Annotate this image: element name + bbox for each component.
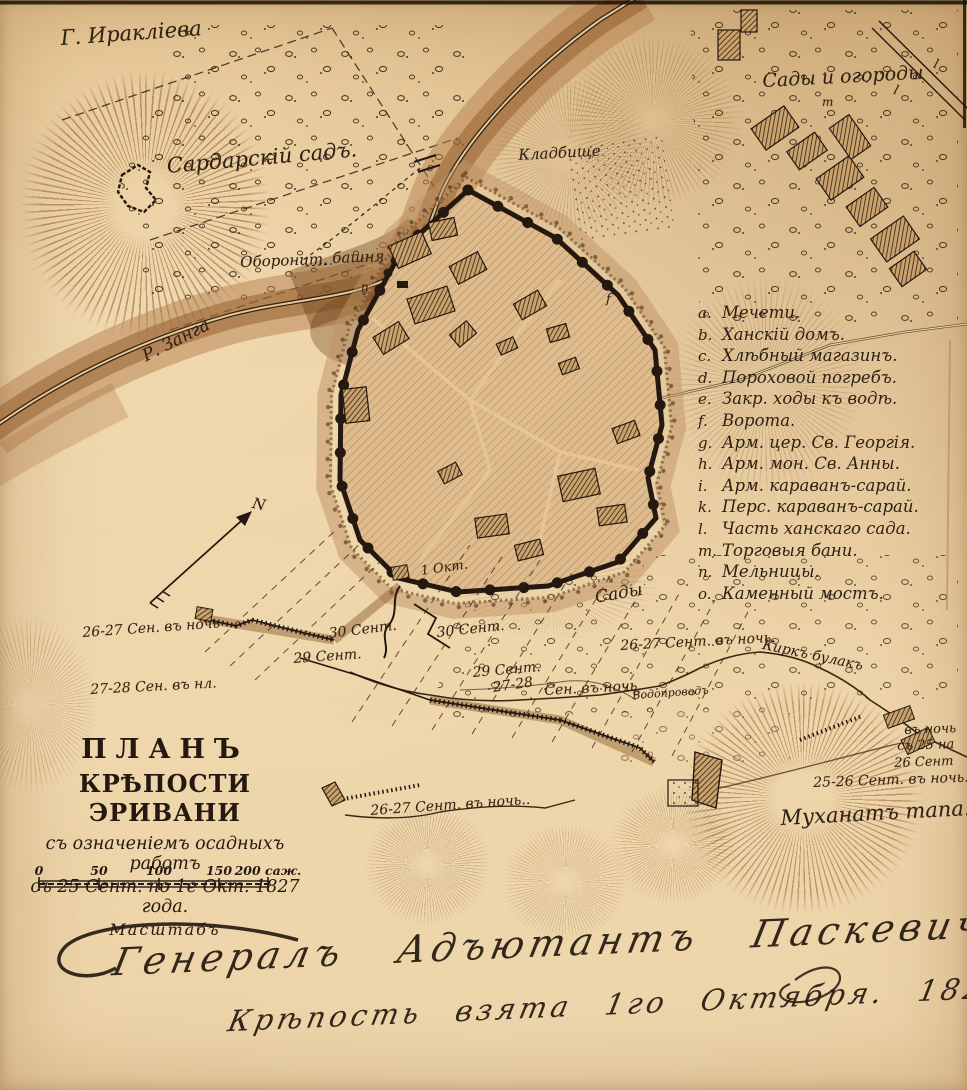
legend-item-e: e.Закр. ходы къ водѣ. [698,389,963,411]
label-night-2526-line2: съ 25 на [897,738,954,753]
legend-item-label: Торговыя бани. [722,541,858,560]
legend-item-a: a.Мечети. [698,303,963,325]
mark-f-gate: f [606,293,611,306]
legend-item-key: k. [698,498,722,516]
scale-tick-50: 50 [90,863,107,878]
legend-item-label: Часть ханскаго сада. [722,519,911,538]
map-legend: a.Мечети.b.Ханскій домъ.c.Хлѣбный магази… [698,303,963,605]
legend-item-g: g.Арм. цер. Св. Георгія. [698,433,963,455]
legend-item-o: o.Каменный мостъ. [698,584,963,606]
legend-item-label: Мечети. [722,303,800,322]
legend-item-label: Арм. караванъ-сарай. [722,476,912,495]
map-title-line2: КРѢПОСТИ ЭРИВАНИ [22,769,308,827]
legend-item-label: Ханскій домъ. [722,325,845,344]
legend-item-h: h.Арм. мон. Св. Анны. [698,454,963,476]
legend-item-label: Каменный мостъ. [722,584,884,603]
label-night-2526-line3: 26 Сент [894,755,954,770]
legend-item-m: m.Торговыя бани. [698,541,963,563]
legend-item-label: Перс. караванъ-сарай. [722,497,919,516]
legend-item-key: l. [698,520,722,538]
north-arrow [150,511,252,608]
label-defensive-tower-word1: Оборонит. [240,252,328,270]
mark-o-stone-bridge: o [427,162,434,173]
legend-item-key: h. [698,455,722,473]
mark-m-baths: m [822,96,833,108]
label-defensive-tower-word2: башня [332,249,385,266]
legend-item-d: d.Пороховой погребъ. [698,368,963,390]
legend-item-label: Пороховой погребъ. [722,368,897,387]
legend-item-key: m. [698,542,722,560]
mark-n-mill: n [361,281,369,293]
label-night-2526-line1: въ ночь [904,722,956,737]
legend-item-n: n.Мельницы. [698,562,963,584]
legend-item-label: Арм. цер. Св. Георгія. [722,433,915,452]
legend-item-key: o. [698,585,722,603]
map-canvas: Г. ИракліеваСардарскій садъ.КладбищеОбор… [0,0,967,1090]
legend-item-i: i.Арм. караванъ-сарай. [698,476,963,498]
legend-item-key: d. [698,369,722,387]
legend-item-key: i. [698,477,722,495]
legend-item-f: f.Ворота. [698,411,963,433]
legend-item-label: Хлѣбный магазинъ. [722,346,898,365]
legend-item-label: Ворота. [722,411,795,430]
legend-item-key: f. [698,412,722,430]
legend-item-k: k.Перс. караванъ-сарай. [698,497,963,519]
legend-item-key: b. [698,326,722,344]
title-block: ПЛАНЪ КРѢПОСТИ ЭРИВАНИ съ означеніемъ ос… [22,734,308,939]
legend-item-label: Арм. мон. Св. Анны. [722,454,900,473]
legend-item-label: Закр. ходы къ водѣ. [722,389,897,408]
legend-item-label: Мельницы. [722,562,820,581]
scale-tick-0: 0 [35,863,44,878]
legend-item-key: c. [698,347,722,365]
scale-tick-200-саж.: 200 саж. [235,863,302,878]
scale-tick-100: 100 [146,863,172,878]
legend-item-key: g. [698,434,722,452]
legend-item-c: c.Хлѣбный магазинъ. [698,346,963,368]
label-cemetery: Кладбище [518,144,601,163]
legend-item-b: b.Ханскій домъ. [698,325,963,347]
legend-item-key: e. [698,390,722,408]
map-title-line1: ПЛАНЪ [22,734,308,765]
legend-item-key: n. [698,563,722,581]
map-subtitle-line2: съ 25 Сент. по 1е Окт. 1827 года. [22,877,308,917]
legend-item-l: l.Часть ханскаго сада. [698,519,963,541]
legend-item-key: a. [698,304,722,322]
scale-tick-150: 150 [206,863,232,878]
